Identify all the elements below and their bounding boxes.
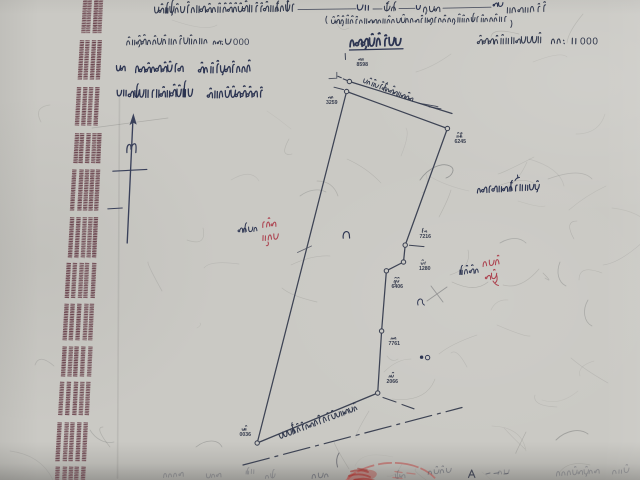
svg-text:8598: 8598 <box>357 62 369 68</box>
svg-text:000: 000 <box>580 36 599 47</box>
svg-text:0036: 0036 <box>240 432 252 438</box>
svg-text:1280: 1280 <box>419 266 431 272</box>
svg-text:2066: 2066 <box>387 379 399 385</box>
svg-text:000: 000 <box>233 37 250 47</box>
svg-text:7761: 7761 <box>389 341 401 347</box>
svg-text:6406: 6406 <box>392 284 404 290</box>
svg-text:3259: 3259 <box>326 100 338 106</box>
svg-text:6245: 6245 <box>455 139 467 145</box>
svg-text:7216: 7216 <box>420 234 432 240</box>
